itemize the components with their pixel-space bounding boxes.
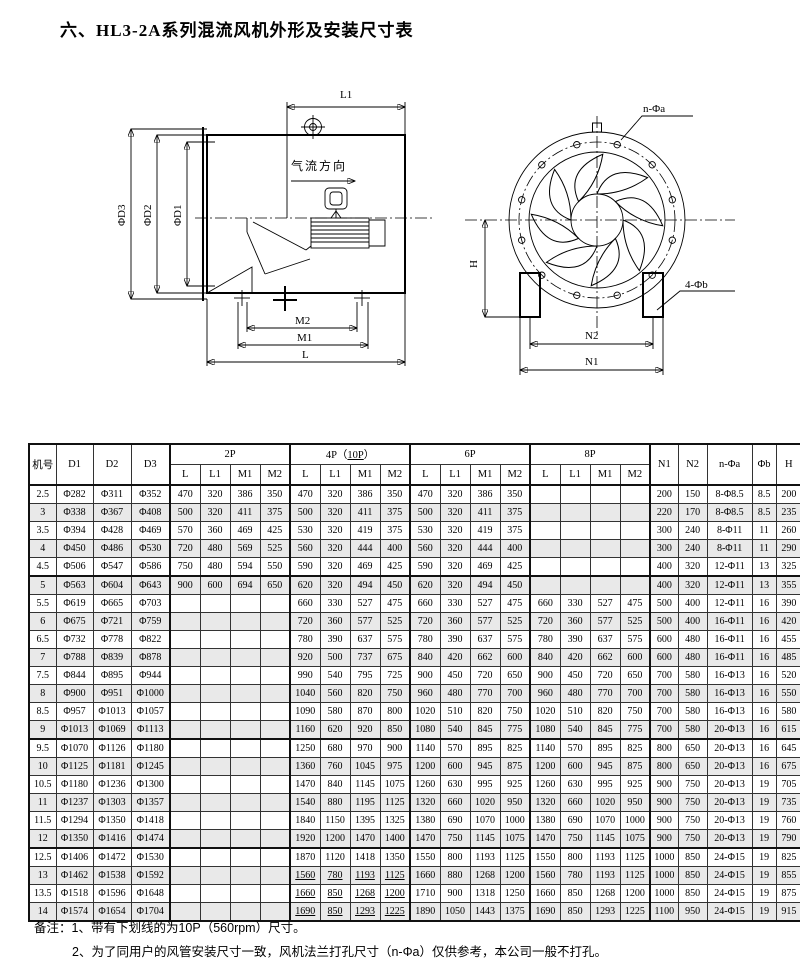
table-cell	[260, 812, 290, 830]
table-cell: 360	[560, 613, 590, 631]
table-cell: 1125	[380, 867, 410, 885]
table-cell: 720	[470, 667, 500, 685]
table-cell	[230, 867, 260, 885]
table-cell: 480	[678, 649, 707, 667]
dim-label-l1: L1	[340, 89, 352, 101]
table-cell: 411	[230, 504, 260, 522]
table-cell	[170, 649, 200, 667]
table-cell	[170, 721, 200, 740]
column-header: M2	[620, 465, 650, 486]
table-cell: 900	[650, 794, 678, 812]
table-cell: 1000	[500, 812, 530, 830]
table-row: 13Φ1462Φ1538Φ159215607801193112516608801…	[29, 867, 800, 885]
table-cell: 325	[776, 558, 800, 577]
table-cell: 527	[590, 595, 620, 613]
table-cell	[200, 830, 230, 849]
table-cell: 375	[260, 504, 290, 522]
table-cell: 650	[500, 667, 530, 685]
table-cell	[170, 794, 200, 812]
column-header: M1	[470, 465, 500, 486]
table-cell: Φ619	[56, 595, 93, 613]
note-label: 备注：	[34, 921, 72, 935]
table-cell: Φ547	[93, 558, 131, 577]
table-cell: 620	[290, 576, 320, 595]
table-cell: Φ1596	[93, 885, 131, 903]
table-cell: 690	[440, 812, 470, 830]
table-cell: Φ1057	[131, 703, 170, 721]
dimension-table-wrap: 机号D1D2D32P4P（10P）6P8PN1N2n-ΦaΦbHLL1M1M2L…	[28, 443, 800, 922]
table-cell: 630	[560, 776, 590, 794]
table-cell	[230, 667, 260, 685]
table-cell: 400	[650, 576, 678, 595]
table-cell: 900	[440, 885, 470, 903]
table-cell	[260, 794, 290, 812]
table-cell: 320	[440, 558, 470, 577]
table-cell	[230, 794, 260, 812]
table-cell	[260, 631, 290, 649]
column-header: N2	[678, 444, 707, 485]
table-cell: 24-Φ15	[707, 903, 752, 922]
table-cell	[170, 830, 200, 849]
table-cell	[590, 522, 620, 540]
table-cell: 1320	[410, 794, 440, 812]
table-cell	[260, 595, 290, 613]
table-cell: Φ732	[56, 631, 93, 649]
table-cell: 6.5	[29, 631, 56, 649]
table-cell: 950	[500, 794, 530, 812]
table-cell: 945	[590, 758, 620, 776]
table-cell: 1540	[290, 794, 320, 812]
table-cell: 1660	[410, 867, 440, 885]
table-cell: Φ1236	[93, 776, 131, 794]
fan-side-view-drawing: L1 ΦD3 ΦD2 ΦD1 气流方向	[95, 80, 440, 400]
table-cell: Φ469	[131, 522, 170, 540]
table-cell: 419	[470, 522, 500, 540]
table-cell: 400	[500, 540, 530, 558]
table-cell: 915	[776, 903, 800, 922]
table-cell: 360	[440, 613, 470, 631]
table-cell: 875	[776, 885, 800, 903]
table-cell: 945	[470, 758, 500, 776]
table-cell: 13.5	[29, 885, 56, 903]
table-cell: 1140	[530, 739, 560, 758]
table-cell: Φ1181	[93, 758, 131, 776]
n-phi-a-leader	[621, 116, 693, 140]
table-cell: 577	[350, 613, 380, 631]
table-cell: 850	[320, 885, 350, 903]
table-cell: 700	[650, 721, 678, 740]
table-cell: Φ1180	[56, 776, 93, 794]
table-cell: 800	[380, 703, 410, 721]
table-cell: 900	[170, 576, 200, 595]
table-cell: Φ506	[56, 558, 93, 577]
dim-label-d1: ΦD1	[172, 205, 184, 226]
table-cell: Φ1294	[56, 812, 93, 830]
table-row: 6.5Φ732Φ778Φ8227803906375757803906375757…	[29, 631, 800, 649]
table-cell: 16-Φ11	[707, 631, 752, 649]
table-cell: 386	[470, 485, 500, 504]
table-cell: 737	[350, 649, 380, 667]
table-cell: 320	[440, 485, 470, 504]
table-cell: 8.5	[29, 703, 56, 721]
dim-label-m1: M1	[297, 332, 312, 344]
table-cell: 170	[678, 504, 707, 522]
table-cell: 720	[290, 613, 320, 631]
table-cell	[230, 758, 260, 776]
column-header: 6P	[410, 444, 530, 465]
dim-label-n-phi-a: n-Φa	[643, 103, 665, 115]
column-header: L	[290, 465, 320, 486]
table-cell: Φ1350	[56, 830, 93, 849]
table-cell: 527	[350, 595, 380, 613]
table-cell: 12-Φ11	[707, 595, 752, 613]
table-cell: 780	[560, 867, 590, 885]
table-cell: 895	[590, 739, 620, 758]
table-cell: 8	[29, 685, 56, 703]
table-cell: 16	[752, 649, 776, 667]
catalog-page: { "title": "六、HL3-2A系列混流风机外形及安装尺寸表", "dr…	[0, 0, 800, 978]
table-cell: 850	[380, 721, 410, 740]
table-cell: 16	[752, 721, 776, 740]
table-cell: 560	[290, 540, 320, 558]
table-row: 10.5Φ1180Φ1236Φ1300147084011451075126063…	[29, 776, 800, 794]
table-cell: 1660	[530, 885, 560, 903]
table-cell: 1125	[380, 794, 410, 812]
table-cell	[200, 812, 230, 830]
table-cell: 800	[650, 758, 678, 776]
table-cell: 16	[752, 758, 776, 776]
table-cell: 1840	[290, 812, 320, 830]
table-cell: 1120	[320, 848, 350, 867]
table-cell: 600	[560, 758, 590, 776]
table-cell: 1020	[530, 703, 560, 721]
table-cell: Φ1000	[131, 685, 170, 703]
table-row: 5Φ563Φ604Φ643900600694650620320494450620…	[29, 576, 800, 595]
table-cell	[230, 776, 260, 794]
table-row: 13.5Φ1518Φ1596Φ1648166085012681200171090…	[29, 885, 800, 903]
table-cell: 1000	[650, 867, 678, 885]
table-cell	[170, 739, 200, 758]
table-cell: Φ1472	[93, 848, 131, 867]
table-cell: 4	[29, 540, 56, 558]
table-cell: 850	[678, 867, 707, 885]
table-cell: 760	[776, 812, 800, 830]
column-header: L	[530, 465, 560, 486]
table-cell: 775	[620, 721, 650, 740]
table-cell	[560, 485, 590, 504]
table-cell	[530, 540, 560, 558]
table-cell: 1395	[350, 812, 380, 830]
table-cell	[200, 613, 230, 631]
table-cell: 600	[650, 631, 678, 649]
table-row: 10Φ1125Φ1181Φ124513607601045975120060094…	[29, 758, 800, 776]
table-cell: 1193	[590, 848, 620, 867]
table-cell: 637	[470, 631, 500, 649]
table-cell: Φ1518	[56, 885, 93, 903]
table-cell: 1470	[530, 830, 560, 849]
table-cell: Φ951	[93, 685, 131, 703]
table-cell	[230, 830, 260, 849]
table-cell	[530, 522, 560, 540]
table-cell: 900	[410, 667, 440, 685]
table-cell: 19	[752, 885, 776, 903]
table-cell: 411	[350, 504, 380, 522]
column-header: M2	[260, 465, 290, 486]
table-cell: 375	[380, 504, 410, 522]
table-cell: 580	[678, 667, 707, 685]
table-cell: 1470	[290, 776, 320, 794]
table-cell: 494	[350, 576, 380, 595]
table-cell	[560, 540, 590, 558]
column-header: D2	[93, 444, 131, 485]
table-cell	[200, 776, 230, 794]
table-cell: 720	[590, 667, 620, 685]
table-cell: 5.5	[29, 595, 56, 613]
table-cell: 10	[29, 758, 56, 776]
table-cell: Φ1462	[56, 867, 93, 885]
table-cell: 594	[230, 558, 260, 577]
table-cell: 570	[170, 522, 200, 540]
column-header: M2	[500, 465, 530, 486]
table-cell: 600	[500, 649, 530, 667]
table-cell	[530, 504, 560, 522]
table-row: 5.5Φ619Φ665Φ7036603305274756603305274756…	[29, 595, 800, 613]
table-cell: 444	[470, 540, 500, 558]
table-cell	[230, 739, 260, 758]
table-cell: 19	[752, 903, 776, 922]
table-row: 12.5Φ1406Φ1472Φ1530187011201418135015508…	[29, 848, 800, 867]
table-cell: 1125	[620, 867, 650, 885]
table-cell: 580	[320, 703, 350, 721]
table-cell	[260, 613, 290, 631]
table-cell: 1125	[620, 848, 650, 867]
table-cell: 850	[678, 848, 707, 867]
right-foot	[643, 273, 663, 317]
table-cell: 400	[380, 540, 410, 558]
dim-label-4-phi-b: 4-Φb	[685, 279, 708, 291]
table-cell	[200, 739, 230, 758]
table-cell: Φ311	[93, 485, 131, 504]
table-cell	[560, 576, 590, 595]
table-cell: 850	[678, 885, 707, 903]
table-cell: 390	[320, 631, 350, 649]
table-cell: 895	[470, 739, 500, 758]
table-cell: 20-Φ13	[707, 721, 752, 740]
table-cell: 9.5	[29, 739, 56, 758]
table-cell: 360	[320, 613, 350, 631]
table-cell: 235	[776, 504, 800, 522]
table-cell: 900	[650, 830, 678, 849]
table-cell: 375	[500, 522, 530, 540]
table-cell: 1470	[410, 830, 440, 849]
table-cell: 1075	[500, 830, 530, 849]
table-cell	[170, 667, 200, 685]
table-cell: 950	[620, 794, 650, 812]
table-cell: 19	[752, 848, 776, 867]
table-cell: Φ1592	[131, 867, 170, 885]
table-cell: 637	[590, 631, 620, 649]
table-cell: 425	[260, 522, 290, 540]
table-row: 11.5Φ1294Φ1350Φ1418184011501395132513806…	[29, 812, 800, 830]
column-header: H	[776, 444, 800, 485]
table-cell: 1145	[350, 776, 380, 794]
table-cell: 13	[752, 576, 776, 595]
table-cell: 1320	[530, 794, 560, 812]
table-cell	[590, 558, 620, 577]
table-cell: 475	[620, 595, 650, 613]
table-cell	[530, 576, 560, 595]
column-header: D3	[131, 444, 170, 485]
table-cell: 320	[440, 540, 470, 558]
table-cell: 575	[620, 631, 650, 649]
table-cell	[260, 867, 290, 885]
table-cell: 950	[678, 903, 707, 922]
table-cell: 450	[560, 667, 590, 685]
column-header: M2	[380, 465, 410, 486]
table-cell: 12-Φ11	[707, 576, 752, 595]
table-cell: 1710	[410, 885, 440, 903]
table-cell: 500	[410, 504, 440, 522]
table-cell	[200, 848, 230, 867]
table-cell: Φ1013	[56, 721, 93, 740]
table-cell: 1380	[410, 812, 440, 830]
table-cell: Φ486	[93, 540, 131, 558]
table-cell: Φ1013	[93, 703, 131, 721]
table-cell: 7.5	[29, 667, 56, 685]
table-cell: 900	[380, 739, 410, 758]
table-cell: 20-Φ13	[707, 758, 752, 776]
table-cell: 1268	[590, 885, 620, 903]
dim-label-m2: M2	[295, 315, 310, 327]
table-cell: 720	[170, 540, 200, 558]
table-cell: 16-Φ11	[707, 649, 752, 667]
table-cell: Φ1303	[93, 794, 131, 812]
table-cell: 690	[560, 812, 590, 830]
table-cell: Φ900	[56, 685, 93, 703]
table-cell: 580	[678, 721, 707, 740]
table-row: 11Φ1237Φ1303Φ135715408801195112513206601…	[29, 794, 800, 812]
table-cell	[260, 667, 290, 685]
table-cell	[620, 485, 650, 504]
table-cell	[170, 685, 200, 703]
table-cell	[200, 703, 230, 721]
table-cell: 660	[290, 595, 320, 613]
table-cell: 330	[440, 595, 470, 613]
table-cell: 450	[440, 667, 470, 685]
table-cell: 570	[560, 739, 590, 758]
table-cell: Φ1245	[131, 758, 170, 776]
table-cell: 1200	[530, 758, 560, 776]
table-cell: 1125	[500, 848, 530, 867]
table-cell	[200, 885, 230, 903]
table-cell	[620, 504, 650, 522]
table-cell: 469	[230, 522, 260, 540]
table-cell: 675	[380, 649, 410, 667]
left-foot	[520, 273, 540, 317]
table-cell: 750	[170, 558, 200, 577]
table-cell: 1250	[500, 885, 530, 903]
table-cell	[260, 885, 290, 903]
table-cell: 820	[590, 703, 620, 721]
table-cell	[170, 867, 200, 885]
table-cell: 577	[590, 613, 620, 631]
table-cell: 320	[320, 485, 350, 504]
table-cell: 620	[410, 576, 440, 595]
table-cell: 870	[350, 703, 380, 721]
table-cell: 725	[380, 667, 410, 685]
table-cell: 840	[530, 649, 560, 667]
table-cell: Φ530	[131, 540, 170, 558]
column-header: L1	[320, 465, 350, 486]
table-cell: 620	[320, 721, 350, 740]
table-cell: 390	[776, 595, 800, 613]
table-cell: 680	[320, 739, 350, 758]
table-cell: 455	[776, 631, 800, 649]
table-cell: 525	[380, 613, 410, 631]
side-view-svg: L1 ΦD3 ΦD2 ΦD1 气流方向	[95, 80, 440, 395]
table-cell: 840	[410, 649, 440, 667]
table-cell: 660	[560, 794, 590, 812]
table-cell: 845	[590, 721, 620, 740]
table-cell: 580	[678, 685, 707, 703]
table-cell	[590, 485, 620, 504]
table-cell: Φ1416	[93, 830, 131, 849]
table-cell: 200	[776, 485, 800, 504]
table-cell	[560, 558, 590, 577]
table-cell: Φ839	[93, 649, 131, 667]
table-cell: 650	[678, 758, 707, 776]
table-cell: 290	[776, 540, 800, 558]
table-cell: 995	[590, 776, 620, 794]
table-cell: 820	[470, 703, 500, 721]
table-cell	[230, 812, 260, 830]
table-cell: 300	[650, 522, 678, 540]
table-cell: 13	[29, 867, 56, 885]
table-cell: Φ563	[56, 576, 93, 595]
table-cell: 1318	[470, 885, 500, 903]
table-cell: 12.5	[29, 848, 56, 867]
table-cell: 320	[678, 576, 707, 595]
table-cell: 850	[560, 885, 590, 903]
table-cell: 260	[776, 522, 800, 540]
table-cell: 550	[260, 558, 290, 577]
table-cell: 975	[380, 758, 410, 776]
table-row: 8Φ900Φ951Φ100010405608207509604807707009…	[29, 685, 800, 703]
table-cell: 8.5	[752, 504, 776, 522]
table-cell: 13	[752, 558, 776, 577]
table-cell: 1225	[620, 903, 650, 922]
table-cell: Φ1125	[56, 758, 93, 776]
table-cell	[230, 613, 260, 631]
table-row: 3Φ338Φ367Φ408500320411375500320411375500…	[29, 504, 800, 522]
front-view-svg: n-Φa H 4-Φb N2 N1	[435, 92, 800, 392]
table-cell: 900	[650, 812, 678, 830]
table-cell	[260, 758, 290, 776]
table-cell	[170, 595, 200, 613]
table-cell	[260, 739, 290, 758]
table-cell: 12-Φ11	[707, 558, 752, 577]
table-row: 7.5Φ844Φ895Φ9449905407957259004507206509…	[29, 667, 800, 685]
table-cell: Φ450	[56, 540, 93, 558]
table-cell: 650	[678, 739, 707, 758]
table-cell: 900	[650, 776, 678, 794]
table-cell: Φ1418	[131, 812, 170, 830]
table-cell: 390	[440, 631, 470, 649]
table-cell: 386	[350, 485, 380, 504]
table-cell: 320	[320, 558, 350, 577]
table-cell: 1145	[590, 830, 620, 849]
table-cell: 560	[410, 540, 440, 558]
